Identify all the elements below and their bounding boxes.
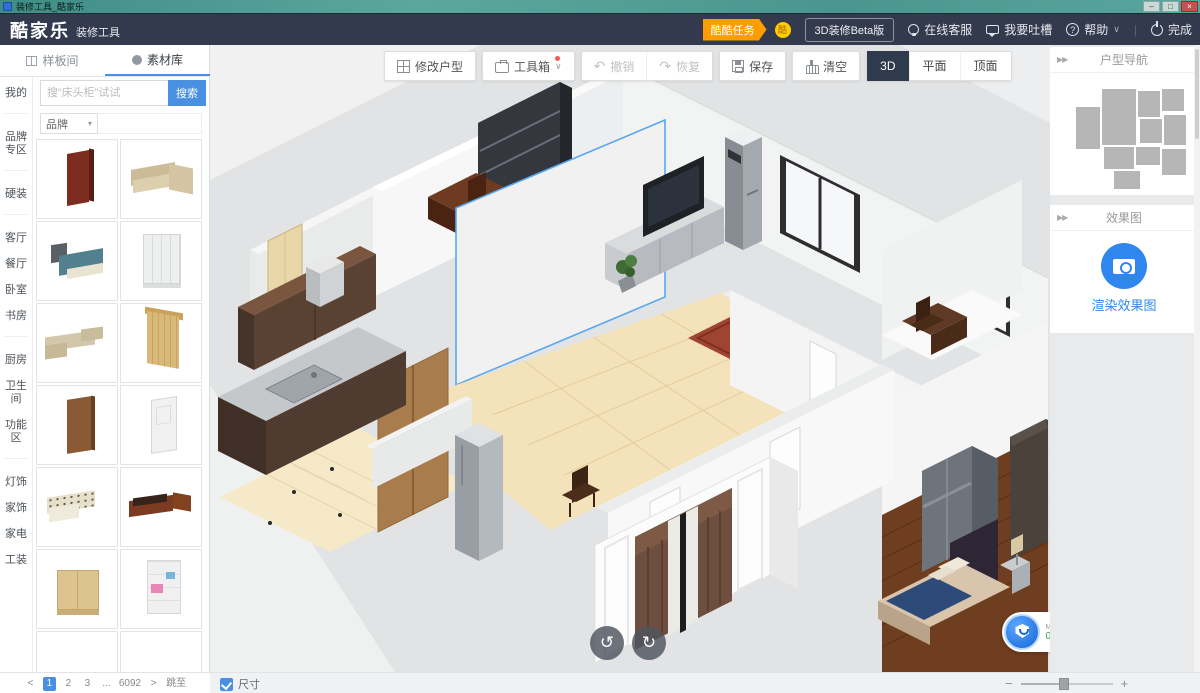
maximize-button[interactable]: □ [1162,1,1179,12]
tab-material-library[interactable]: 素材库 [105,45,210,76]
render-section-title: 效果图 [1050,209,1198,226]
rotate-controls: ↺ ↻ [590,626,666,660]
category-rail: 我的 品牌专区 硬装 客厅 餐厅 卧室 书房 厨房 卫生间 功能区 灯饰 家饰 … [0,77,33,672]
item-light-wood-cabinet[interactable] [36,549,118,629]
camera-render-button[interactable] [1101,243,1147,289]
view-mode-plan[interactable]: 平面 [909,51,960,81]
power-icon [1151,24,1163,36]
prev-page-button[interactable]: < [24,677,37,691]
material-panel: 搜索 品牌 ▾ [33,77,209,672]
floorplan-nav-card: ▶▶ 户型导航 [1050,47,1198,195]
item-white-wood-door[interactable] [120,385,202,465]
page-3[interactable]: 3 [81,677,94,691]
toolbox-icon [495,62,509,73]
item-redwood-sofa-set[interactable] [120,467,202,547]
online-service-button[interactable]: 在线客服 [908,21,972,38]
window-title: 装修工具_酷家乐 [16,0,84,13]
collapse-icon[interactable]: ▶▶ [1057,55,1067,64]
canvas-toolbar: 修改户型 工具箱 ∨ ↶ 撤销 ↷ 恢复 [384,51,1012,81]
next-page-button[interactable]: > [147,677,160,691]
notification-dot [555,56,560,61]
search-button[interactable]: 搜索 [168,80,206,106]
item-floral-fabric-sofa[interactable] [36,467,118,547]
refrigerator[interactable] [455,423,503,561]
collapse-icon[interactable]: ▶▶ [1057,213,1067,222]
redo-button[interactable]: ↷ 恢复 [646,51,712,81]
item-brown-wood-door[interactable] [36,385,118,465]
view-mode-ceiling[interactable]: 顶面 [960,51,1011,81]
item-blue-floral-sofa[interactable] [36,631,118,672]
toolbox-button[interactable]: 工具箱 ∨ [483,51,574,81]
category-lighting[interactable]: 灯饰 [3,476,29,489]
broom-icon [805,60,818,72]
window-titlebar: 装修工具_酷家乐 – □ × [0,0,1200,14]
page-last[interactable]: 6092 [119,677,141,691]
category-commercial[interactable]: 工装 [3,554,29,567]
app-logo-suffix: 装修工具 [76,24,120,40]
standing-air-conditioner[interactable] [725,128,762,250]
zoom-out-button[interactable]: − [1005,676,1013,691]
jump-to-label[interactable]: 跳至 [166,677,186,691]
task-badge[interactable]: 酷酷任务 [703,19,767,41]
category-function-area[interactable]: 功能区 [3,419,29,445]
sidebar: 样板间 素材库 我的 品牌专区 硬装 客厅 餐厅 卧室 书房 厨房 卫生间 功能… [0,45,210,672]
shield-icon [1004,614,1040,650]
floorplan-3d-canvas[interactable]: 修改户型 工具箱 ∨ ↶ 撤销 ↷ 恢复 [210,45,1050,672]
category-hard-decor[interactable]: 硬装 [3,188,29,201]
chevron-down-icon: ▾ [88,119,92,128]
item-white-four-door-wardrobe[interactable] [120,221,202,301]
category-kitchen[interactable]: 厨房 [3,354,29,367]
grid-icon [397,60,410,73]
category-study[interactable]: 书房 [3,310,29,323]
category-mine[interactable]: 我的 [3,87,29,100]
question-icon: ? [1066,23,1079,36]
category-appliance[interactable]: 家电 [3,528,29,541]
page-2[interactable]: 2 [62,677,75,691]
material-grid [36,139,206,672]
nav-divider: | [1134,23,1137,37]
zoom-control: − + [1005,673,1128,693]
rotate-right-button[interactable]: ↻ [632,626,666,660]
feedback-button[interactable]: 我要吐槽 [986,21,1052,38]
save-button[interactable]: 保存 [720,51,785,81]
category-living-room[interactable]: 客厅 [3,232,29,245]
material-pagination: < 1 2 3 ... 6092 > 跳至 [0,673,210,693]
zoom-slider[interactable] [1021,683,1113,685]
app-icon [3,2,12,11]
security-badge[interactable]: MESSA 0/mi [1002,612,1050,652]
category-home-decor[interactable]: 家饰 [3,502,29,515]
page-ellipsis: ... [100,677,113,691]
headset-icon [908,24,919,35]
chevron-down-icon: ∨ [1113,24,1120,35]
dimension-label: 尺寸 [238,676,260,692]
floorplan-nav-title: 户型导航 [1050,51,1198,68]
brand-filter-value[interactable] [98,113,202,134]
undo-button[interactable]: ↶ 撤销 [582,51,647,81]
minimize-button[interactable]: – [1143,1,1160,12]
brand-filter-select[interactable]: 品牌 ▾ [40,113,98,134]
item-gold-curtain[interactable] [120,303,202,383]
category-bedroom[interactable]: 卧室 [3,284,29,297]
item-beige-corner-sofa[interactable] [120,139,202,219]
rotate-left-button[interactable]: ↺ [590,626,624,660]
category-dining-room[interactable]: 餐厅 [3,258,29,271]
finish-button[interactable]: 完成 [1151,21,1192,38]
bottom-bar: < 1 2 3 ... 6092 > 跳至 尺寸 − + [0,672,1200,693]
right-panel: ▶▶ 户型导航 ▶▶ 效果图 渲染效果图 [1050,45,1200,672]
search-input[interactable] [40,80,168,106]
sidebar-tabs: 样板间 素材库 [0,45,210,77]
close-button[interactable]: × [1181,1,1198,12]
item-blue-double-bed[interactable] [36,221,118,301]
item-red-panel-door[interactable] [36,139,118,219]
clear-button[interactable]: 清空 [793,51,859,81]
isometric-scene[interactable] [210,45,1050,672]
modify-layout-button[interactable]: 修改户型 [385,51,475,81]
render-card: ▶▶ 效果图 渲染效果图 [1050,205,1198,333]
speech-bubble-icon [986,25,999,34]
floorplan-minimap[interactable] [1050,73,1198,195]
redo-icon: ↷ [659,59,671,73]
item-beige-sectional-sofa[interactable] [36,303,118,383]
app-navbar: 酷家乐 装修工具 酷酷任务 酷 3D装修Beta版 在线客服 我要吐槽 ? 帮助… [0,14,1200,45]
beta-button[interactable]: 3D装修Beta版 [805,18,895,42]
sphere-icon [132,55,142,65]
help-button[interactable]: ? 帮助 ∨ [1066,21,1120,38]
save-icon [732,60,744,72]
zoom-in-button[interactable]: + [1121,676,1129,691]
panel-scrollbar[interactable] [1194,45,1200,672]
app-window: 装修工具_酷家乐 – □ × 酷家乐 装修工具 酷酷任务 酷 3D装修Beta版… [0,0,1200,693]
view-mode-3d[interactable]: 3D [867,51,908,81]
category-brand-zone[interactable]: 品牌专区 [3,131,29,157]
category-bathroom[interactable]: 卫生间 [3,380,29,406]
item-white-corner-sofa[interactable] [120,631,202,672]
page-1[interactable]: 1 [43,677,56,691]
render-button-label[interactable]: 渲染效果图 [1050,295,1198,314]
dimension-checkbox[interactable] [220,678,233,691]
zoom-slider-handle[interactable] [1059,678,1069,690]
undo-icon: ↶ [594,59,606,73]
coin-icon[interactable]: 酷 [775,22,791,38]
app-logo: 酷家乐 [10,17,70,43]
tab-template-rooms[interactable]: 样板间 [0,45,105,76]
item-white-desk-bookshelf[interactable] [120,549,202,629]
layout-icon [26,56,37,66]
